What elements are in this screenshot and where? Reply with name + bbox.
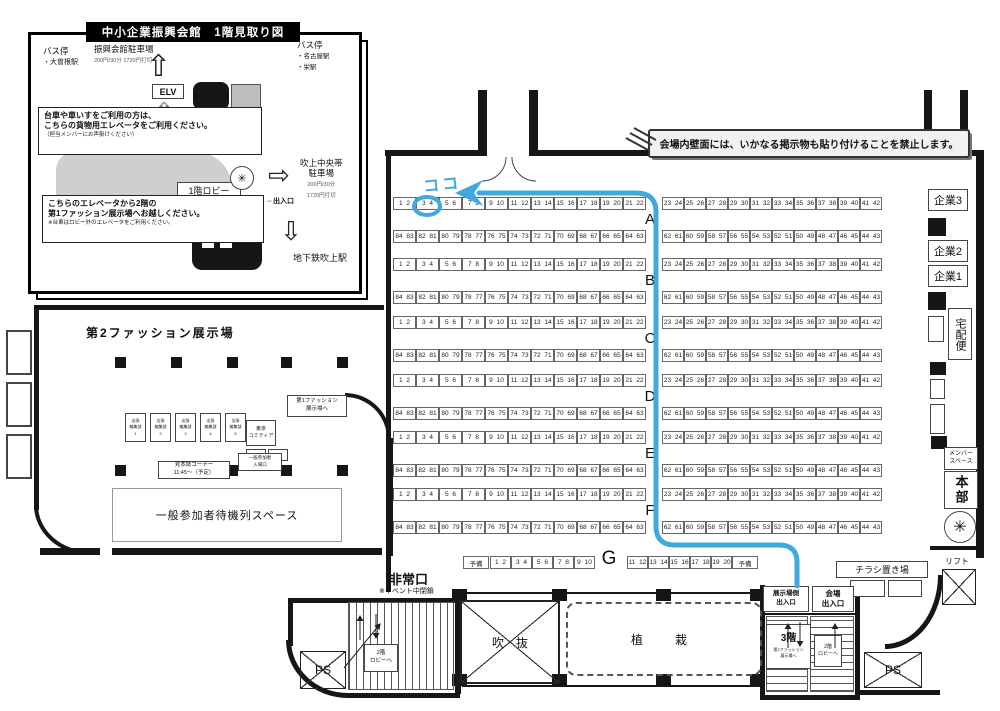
booth-cell: 31 32 bbox=[750, 374, 772, 387]
flyer-table bbox=[888, 580, 922, 597]
venue-exit: 会場出入口 bbox=[812, 586, 854, 612]
booth-cell: 35 36 bbox=[794, 374, 816, 387]
booth-cell: 15 16 bbox=[554, 431, 577, 444]
route-here-marker: ココ bbox=[422, 169, 462, 197]
ps-right-label: PS bbox=[885, 663, 901, 677]
booth-cell: 5 6 bbox=[439, 197, 462, 210]
lobby2-left-label: 2階ロビーへ bbox=[370, 650, 392, 665]
booth-cell: 48 47 bbox=[816, 230, 838, 243]
booth-cell: 44 43 bbox=[860, 407, 882, 420]
booth-cell: 80 79 bbox=[439, 230, 462, 243]
company3-label: 企業3 bbox=[934, 192, 962, 208]
booth-cell: 19 20 bbox=[600, 488, 623, 501]
booth-cell: 29 30 bbox=[728, 431, 750, 444]
booth-cell: 23 24 bbox=[662, 431, 684, 444]
booth-cell: 58 57 bbox=[706, 230, 728, 243]
booth-cell: 17 18 bbox=[577, 197, 600, 210]
booth-cell: 31 32 bbox=[750, 431, 772, 444]
ps-shaft-left: PS bbox=[300, 651, 346, 689]
booth-cell: 3 4 bbox=[416, 258, 439, 271]
booth-cell: 50 49 bbox=[794, 349, 816, 362]
booth-cell: 39 40 bbox=[838, 431, 860, 444]
booth-cell: 19 20 bbox=[711, 556, 732, 569]
booth-cell: 7 8 bbox=[462, 374, 485, 387]
booth-cell: 19 20 bbox=[600, 374, 623, 387]
booth-cell: 48 47 bbox=[816, 291, 838, 304]
spiral-stair: ✳ bbox=[944, 511, 976, 543]
booth-cell: 80 79 bbox=[439, 407, 462, 420]
editorial-desk-booth: 出張編集部2 bbox=[150, 413, 171, 442]
lift-area-label: リフト bbox=[936, 556, 978, 568]
booth-cell: 3 4 bbox=[416, 374, 439, 387]
booth-cell: 27 28 bbox=[706, 488, 728, 501]
booth-cell: 60 59 bbox=[684, 407, 706, 420]
booth-cell: 56 55 bbox=[728, 407, 750, 420]
booth-cell: 7 8 bbox=[462, 316, 485, 329]
booth-cell: 84 83 bbox=[393, 291, 416, 304]
booth-cell: 39 40 bbox=[838, 374, 860, 387]
booth-cell: 54 53 bbox=[750, 349, 772, 362]
editorial-desk-booth: 出張編集部4 bbox=[200, 413, 221, 442]
booth-cell: 52 51 bbox=[772, 521, 794, 534]
flyer-table bbox=[850, 580, 885, 597]
booth-cell: 31 32 bbox=[750, 316, 772, 329]
booth-cell: 68 67 bbox=[577, 291, 600, 304]
booth-cell: 46 45 bbox=[838, 407, 860, 420]
booth-cell: 48 47 bbox=[816, 521, 838, 534]
elevator-core bbox=[193, 82, 229, 110]
booth-cell: 15 16 bbox=[554, 258, 577, 271]
no-posting-banner: 会場内壁面には、いかなる掲示物も貼り付けることを禁止します。 bbox=[648, 129, 970, 158]
booth-cell: 37 38 bbox=[816, 431, 838, 444]
booth-cell: 9 10 bbox=[574, 556, 595, 569]
structural-pillar bbox=[928, 292, 946, 310]
down-arrow-icon: ⇩ bbox=[280, 218, 302, 244]
booth-cell: 37 38 bbox=[816, 258, 838, 271]
booth-cell: 70 69 bbox=[554, 230, 577, 243]
booth-cell: 72 71 bbox=[531, 464, 554, 477]
booth-cell: 25 26 bbox=[684, 431, 706, 444]
booth-cell: 80 79 bbox=[439, 521, 462, 534]
structural-pillar bbox=[115, 357, 126, 368]
booth-cell: 48 47 bbox=[816, 349, 838, 362]
booth-cell: 15 16 bbox=[554, 197, 577, 210]
booth-cell: 76 75 bbox=[485, 230, 508, 243]
booth-cell: 58 57 bbox=[706, 407, 728, 420]
parking-main: 振興会館駐車場200円/30分 1720円打切 bbox=[94, 44, 154, 65]
emergency-exit-note: ※イベント中閉鎖 bbox=[379, 588, 434, 596]
booth-cell: 74 73 bbox=[508, 464, 531, 477]
member-space-label: メンバースペース bbox=[949, 451, 973, 467]
booth-cell: 68 67 bbox=[577, 230, 600, 243]
booth-cell: 52 51 bbox=[772, 407, 794, 420]
booth-cell: 76 75 bbox=[485, 464, 508, 477]
utility-room bbox=[930, 379, 945, 399]
booth-cell: 33 34 bbox=[772, 316, 794, 329]
booth-cell: 46 45 bbox=[838, 349, 860, 362]
booth-cell: 29 30 bbox=[728, 316, 750, 329]
booth-cell: 52 51 bbox=[772, 464, 794, 477]
booth-cell: 82 81 bbox=[416, 349, 439, 362]
booth-cell: 60 59 bbox=[684, 464, 706, 477]
editorial-desk-booth: 出張編集部1 bbox=[125, 413, 146, 442]
structural-pillar bbox=[337, 465, 348, 476]
booth-cell: 9 10 bbox=[485, 374, 508, 387]
inset2-title: 第2ファッション展示場 bbox=[86, 326, 235, 340]
spiral-stair-icon: ✳ bbox=[953, 517, 966, 537]
block-letter: A bbox=[638, 209, 662, 229]
ps-left-label: PS bbox=[315, 663, 331, 677]
lobby2-sign-right: 2階ロビーへ bbox=[814, 635, 842, 667]
flyer-area-label: チラシ置き場 bbox=[855, 563, 909, 576]
booth-cell: 60 59 bbox=[684, 291, 706, 304]
booth-cell: 5 6 bbox=[439, 374, 462, 387]
booth-cell: 17 18 bbox=[690, 556, 711, 569]
waiting-queue-space: 一般参加者待機列スペース bbox=[112, 488, 342, 542]
member-space: メンバースペース bbox=[944, 447, 978, 470]
booth-cell: 82 81 bbox=[416, 464, 439, 477]
booth-cell: 19 20 bbox=[600, 197, 623, 210]
visitor-entrance-label: 一般参加者入場口 bbox=[249, 455, 272, 469]
booth-cell: 39 40 bbox=[838, 316, 860, 329]
booth-cell: 64 63 bbox=[623, 407, 646, 420]
booth-cell: 予備 bbox=[732, 556, 758, 569]
wall-segment bbox=[462, 685, 760, 687]
booth-cell: 1 2 bbox=[393, 374, 416, 387]
wall-segment bbox=[385, 150, 480, 156]
booth-cell: 23 24 bbox=[662, 197, 684, 210]
booth-cell: 70 69 bbox=[554, 407, 577, 420]
booth-cell: 56 55 bbox=[728, 464, 750, 477]
booth-cell: 62 61 bbox=[662, 464, 684, 477]
booth-cell: 33 34 bbox=[772, 197, 794, 210]
booth-cell: 72 71 bbox=[531, 521, 554, 534]
booth-cell: 33 34 bbox=[772, 488, 794, 501]
venue-floor-plan: 会場内壁面には、いかなる掲示物も貼り付けることを禁止します。 1 23 45 6… bbox=[0, 0, 1000, 711]
booth-cell: 78 77 bbox=[462, 291, 485, 304]
booth-cell: 5 6 bbox=[439, 316, 462, 329]
booth-cell: 29 30 bbox=[728, 258, 750, 271]
booth-cell: 1 2 bbox=[393, 258, 416, 271]
booth-cell: 56 55 bbox=[728, 230, 750, 243]
booth-cell: 11 12 bbox=[508, 258, 531, 271]
booth-cell: 64 63 bbox=[623, 349, 646, 362]
company1-label: 企業1 bbox=[934, 268, 962, 284]
booth-cell: 72 71 bbox=[531, 291, 554, 304]
booth-cell: 25 26 bbox=[684, 374, 706, 387]
floor3-sign: 3階 第2ファッション展示場へ bbox=[766, 624, 811, 669]
booth-cell: 82 81 bbox=[416, 521, 439, 534]
booth-cell: 82 81 bbox=[416, 407, 439, 420]
visitor-entrance: 一般参加者入場口 bbox=[238, 453, 282, 471]
structural-pillar bbox=[281, 465, 292, 476]
sample-book-label: 見本誌コーナー11:45～（予定） bbox=[174, 462, 215, 477]
sample-book-corner: 見本誌コーナー11:45～（予定） bbox=[158, 461, 230, 479]
bus-stop-right: バス停・名古屋駅・栄駅 bbox=[297, 40, 330, 71]
booth-cell: 9 10 bbox=[485, 197, 508, 210]
booth-cell: 84 83 bbox=[393, 521, 416, 534]
booth-cell: 68 67 bbox=[577, 464, 600, 477]
booth-cell: 68 67 bbox=[577, 407, 600, 420]
wall-segment bbox=[34, 305, 39, 510]
booth-cell: 74 73 bbox=[508, 407, 531, 420]
booth-cell: 41 42 bbox=[860, 316, 882, 329]
utility-room bbox=[6, 434, 32, 479]
booth-cell: 54 53 bbox=[750, 230, 772, 243]
booth-cell: 62 61 bbox=[662, 349, 684, 362]
editorial-desk-booth: 出張編集部5 bbox=[225, 413, 246, 442]
booth-cell: 50 49 bbox=[794, 291, 816, 304]
booth-cell: 68 67 bbox=[577, 521, 600, 534]
booth-cell: 3 4 bbox=[416, 431, 439, 444]
booth-cell: 80 79 bbox=[439, 291, 462, 304]
courier-area: 宅配便 bbox=[948, 308, 972, 360]
structural-pillar bbox=[171, 357, 182, 368]
block-letter: F bbox=[638, 500, 662, 520]
booth-cell: 52 51 bbox=[772, 230, 794, 243]
editorial-desk-booth: 出張編集部3 bbox=[175, 413, 196, 442]
block-letter: B bbox=[638, 270, 662, 290]
booth-cell: 41 42 bbox=[860, 488, 882, 501]
booth-cell: 56 55 bbox=[728, 349, 750, 362]
parking-right: 吹上中央帯駐車場200円/30分1720円打切 bbox=[300, 158, 343, 199]
booth-cell: 1 2 bbox=[393, 197, 416, 210]
booth-cell: 41 42 bbox=[860, 258, 882, 271]
up-arrow-icon: ⇧ bbox=[146, 52, 171, 82]
booth-cell: 33 34 bbox=[772, 374, 794, 387]
structural-pillar bbox=[227, 357, 238, 368]
booth-cell: 58 57 bbox=[706, 521, 728, 534]
booth-cell: 23 24 bbox=[662, 258, 684, 271]
structural-pillar bbox=[930, 362, 946, 375]
booth-cell: 50 49 bbox=[794, 230, 816, 243]
atrium: 吹 抜 bbox=[460, 600, 560, 684]
booth-cell: 17 18 bbox=[577, 488, 600, 501]
to-hall1-label: 第1ファッション展示場へ bbox=[296, 398, 338, 413]
booth-cell: 35 36 bbox=[794, 316, 816, 329]
booth-cell: 23 24 bbox=[662, 374, 684, 387]
booth-cell: 48 47 bbox=[816, 407, 838, 420]
booth-cell: 56 55 bbox=[728, 291, 750, 304]
booth-cell: 27 28 bbox=[706, 316, 728, 329]
wall-segment bbox=[288, 598, 293, 646]
structural-pillar bbox=[337, 357, 348, 368]
booth-cell: 13 14 bbox=[531, 488, 554, 501]
booth-cell: 64 63 bbox=[623, 291, 646, 304]
curved-wall bbox=[345, 393, 391, 439]
subway-station-label: 地下鉄吹上駅 bbox=[293, 253, 347, 264]
booth-cell: 19 20 bbox=[600, 316, 623, 329]
right-arrow-icon: ⇨ bbox=[268, 162, 290, 188]
atrium-label: 吹 抜 bbox=[492, 634, 528, 651]
booth-cell: 74 73 bbox=[508, 349, 531, 362]
booth-cell: 62 61 bbox=[662, 407, 684, 420]
booth-cell: 54 53 bbox=[750, 521, 772, 534]
booth-cell: 17 18 bbox=[577, 431, 600, 444]
booth-cell: 1 2 bbox=[490, 556, 511, 569]
block-letter: D bbox=[638, 386, 662, 406]
entrance-label: ⇔出入口 bbox=[266, 198, 294, 206]
booth-cell: 7 8 bbox=[462, 431, 485, 444]
booth-cell: 66 65 bbox=[600, 349, 623, 362]
wall-segment bbox=[760, 695, 860, 700]
booth-cell: 66 65 bbox=[600, 407, 623, 420]
booth-cell: 46 45 bbox=[838, 291, 860, 304]
booth-cell: 17 18 bbox=[577, 374, 600, 387]
booth-cell: 27 28 bbox=[706, 258, 728, 271]
booth-cell: 50 49 bbox=[794, 521, 816, 534]
booth-cell: 44 43 bbox=[860, 521, 882, 534]
booth-cell: 5 6 bbox=[439, 488, 462, 501]
booth-cell: 29 30 bbox=[728, 197, 750, 210]
booth-cell: 9 10 bbox=[485, 316, 508, 329]
waiting-queue-label: 一般参加者待機列スペース bbox=[156, 507, 299, 523]
booth-cell: 7 8 bbox=[462, 197, 485, 210]
booth-cell: 15 16 bbox=[554, 316, 577, 329]
booth-cell: 82 81 bbox=[416, 291, 439, 304]
booth-cell: 80 79 bbox=[439, 464, 462, 477]
booth-cell: 66 65 bbox=[600, 464, 623, 477]
booth-cell: 25 26 bbox=[684, 258, 706, 271]
utility-room bbox=[928, 316, 944, 342]
wall-segment bbox=[478, 90, 487, 156]
planting-label: 植 栽 bbox=[631, 631, 697, 648]
floor3-label: 3階 bbox=[767, 629, 810, 644]
booth-cell: 39 40 bbox=[838, 488, 860, 501]
booth-cell: 33 34 bbox=[772, 258, 794, 271]
booth-cell: 17 18 bbox=[577, 316, 600, 329]
booth-cell: 54 53 bbox=[750, 464, 772, 477]
flyer-area: チラシ置き場 bbox=[836, 561, 928, 578]
booth-cell: 13 14 bbox=[531, 316, 554, 329]
booth-cell: 13 14 bbox=[531, 197, 554, 210]
booth-cell: 58 57 bbox=[706, 291, 728, 304]
cargo-elevator-notice: 台車や車いすをご利用の方は、 こちらの貨物用エレベータをご利用ください。 （担当… bbox=[38, 107, 262, 155]
company-booth-2: 企業2 bbox=[928, 240, 968, 262]
booth-cell: 70 69 bbox=[554, 349, 577, 362]
company-booth-1: 企業1 bbox=[928, 265, 968, 287]
booth-cell: 37 38 bbox=[816, 374, 838, 387]
booth-cell: 62 61 bbox=[662, 521, 684, 534]
booth-cell: 58 57 bbox=[706, 349, 728, 362]
structural-pillar bbox=[750, 589, 762, 601]
booth-cell: 78 77 bbox=[462, 407, 485, 420]
booth-cell: 35 36 bbox=[794, 258, 816, 271]
booth-cell: 76 75 bbox=[485, 407, 508, 420]
booth-cell: 1 2 bbox=[393, 431, 416, 444]
booth-cell: 7 8 bbox=[553, 556, 574, 569]
wall-segment bbox=[930, 546, 980, 550]
utility-room bbox=[930, 404, 945, 434]
booth-cell: 66 65 bbox=[600, 230, 623, 243]
booth-cell: 31 32 bbox=[750, 197, 772, 210]
booth-cell: 39 40 bbox=[838, 197, 860, 210]
booth-cell: 46 45 bbox=[838, 521, 860, 534]
booth-cell: 19 20 bbox=[600, 431, 623, 444]
booth-cell: 80 79 bbox=[439, 349, 462, 362]
booth-cell: 11 12 bbox=[508, 197, 531, 210]
utility-room bbox=[6, 330, 32, 375]
planting-area: 植 栽 bbox=[566, 602, 762, 676]
lobby2-sign-left: 2階ロビーへ bbox=[364, 644, 398, 672]
booth-cell: 48 47 bbox=[816, 464, 838, 477]
booth-cell: 76 75 bbox=[485, 521, 508, 534]
booth-cell: 5 6 bbox=[532, 556, 553, 569]
booth-cell: 27 28 bbox=[706, 431, 728, 444]
block-letter: C bbox=[638, 328, 662, 348]
spiral-stair-icon: ✳ bbox=[237, 172, 246, 185]
booth-cell: 1 2 bbox=[393, 316, 416, 329]
elv-box: ELV bbox=[152, 84, 184, 99]
booth-cell: 3 4 bbox=[416, 197, 439, 210]
booth-cell: 41 42 bbox=[860, 197, 882, 210]
booth-cell: 44 43 bbox=[860, 230, 882, 243]
booth-cell: 19 20 bbox=[600, 258, 623, 271]
booth-cell: 27 28 bbox=[706, 374, 728, 387]
booth-cell: 78 77 bbox=[462, 230, 485, 243]
booth-cell: 11 12 bbox=[508, 374, 531, 387]
booth-cell: 46 45 bbox=[838, 230, 860, 243]
door-arc-icon bbox=[482, 157, 536, 181]
booth-cell: 66 65 bbox=[600, 521, 623, 534]
booth-cell: 76 75 bbox=[485, 291, 508, 304]
ps-shaft-right: PS bbox=[864, 652, 922, 688]
booth-cell: 5 6 bbox=[439, 431, 462, 444]
booth-cell: 31 32 bbox=[750, 488, 772, 501]
wall-segment bbox=[224, 548, 279, 555]
booth-cell: 64 63 bbox=[623, 464, 646, 477]
booth-cell: 60 59 bbox=[684, 521, 706, 534]
structural-pillar bbox=[281, 357, 292, 368]
booth-cell: 78 77 bbox=[462, 349, 485, 362]
structural-pillar bbox=[115, 465, 126, 476]
booth-cell: 72 71 bbox=[531, 230, 554, 243]
booth-cell: 54 53 bbox=[750, 291, 772, 304]
bus-stop-left: バス停・大曽根駅 bbox=[43, 46, 78, 67]
booth-cell: 50 49 bbox=[794, 464, 816, 477]
booth-cell: 35 36 bbox=[794, 431, 816, 444]
booth-cell: 37 38 bbox=[816, 316, 838, 329]
booth-cell: 7 8 bbox=[462, 488, 485, 501]
booth-cell: 29 30 bbox=[728, 488, 750, 501]
courier-label: 宅配便 bbox=[952, 318, 968, 351]
floor3-sub: 第2ファッション展示場へ bbox=[767, 647, 810, 659]
wall-segment bbox=[168, 548, 224, 555]
spiral-stair-inset: ✳ bbox=[230, 166, 254, 190]
booth-cell: 11 12 bbox=[508, 431, 531, 444]
hall-side-exit-label: 展示場側出入口 bbox=[773, 590, 799, 608]
booth-cell: 15 16 bbox=[554, 488, 577, 501]
block-letter: E bbox=[638, 443, 662, 463]
booth-cell: 84 83 bbox=[393, 464, 416, 477]
lift-shaft bbox=[942, 569, 976, 605]
booth-cell: 68 67 bbox=[577, 349, 600, 362]
booth-cell: 11 12 bbox=[508, 316, 531, 329]
booth-cell: 56 55 bbox=[728, 521, 750, 534]
booth-cell: 33 34 bbox=[772, 431, 794, 444]
booth-cell: 82 81 bbox=[416, 230, 439, 243]
booth-cell: 84 83 bbox=[393, 407, 416, 420]
booth-cell: 3 4 bbox=[416, 316, 439, 329]
booth-cell: 11 12 bbox=[627, 556, 648, 569]
booth-cell: 70 69 bbox=[554, 521, 577, 534]
booth-cell: 37 38 bbox=[816, 197, 838, 210]
comitia-label: 東京コミティア bbox=[249, 426, 274, 440]
block-letter-g: G bbox=[596, 549, 622, 569]
wall-segment bbox=[855, 585, 860, 697]
booth-cell: 1 2 bbox=[393, 488, 416, 501]
wall-segment bbox=[462, 592, 760, 594]
